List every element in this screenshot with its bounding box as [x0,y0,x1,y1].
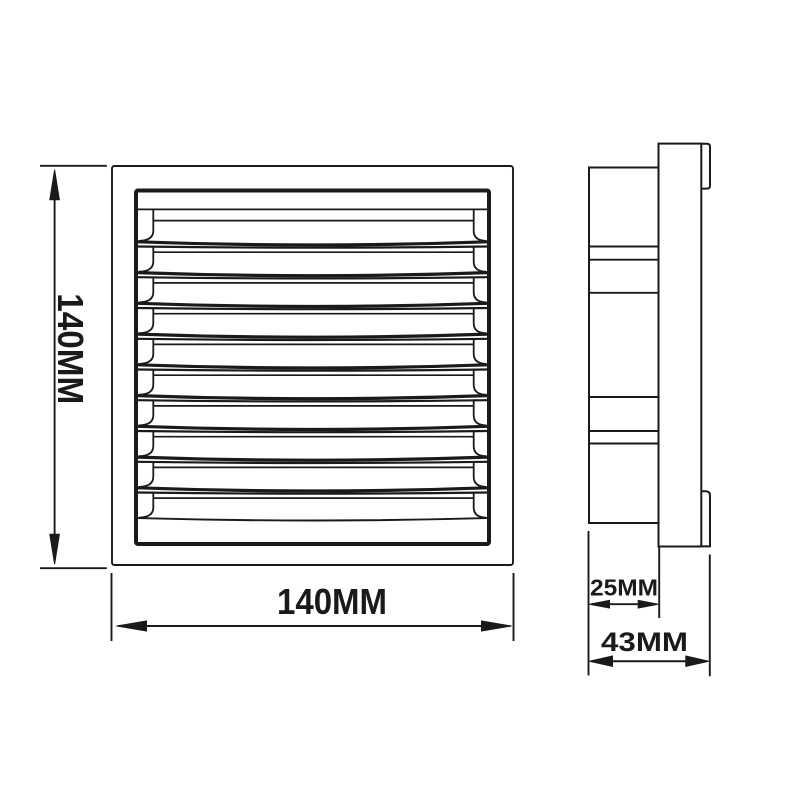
svg-text:25MM: 25MM [590,575,658,601]
svg-text:140MM: 140MM [277,581,387,622]
svg-text:43MM: 43MM [601,627,688,657]
svg-text:140MM: 140MM [50,293,91,404]
